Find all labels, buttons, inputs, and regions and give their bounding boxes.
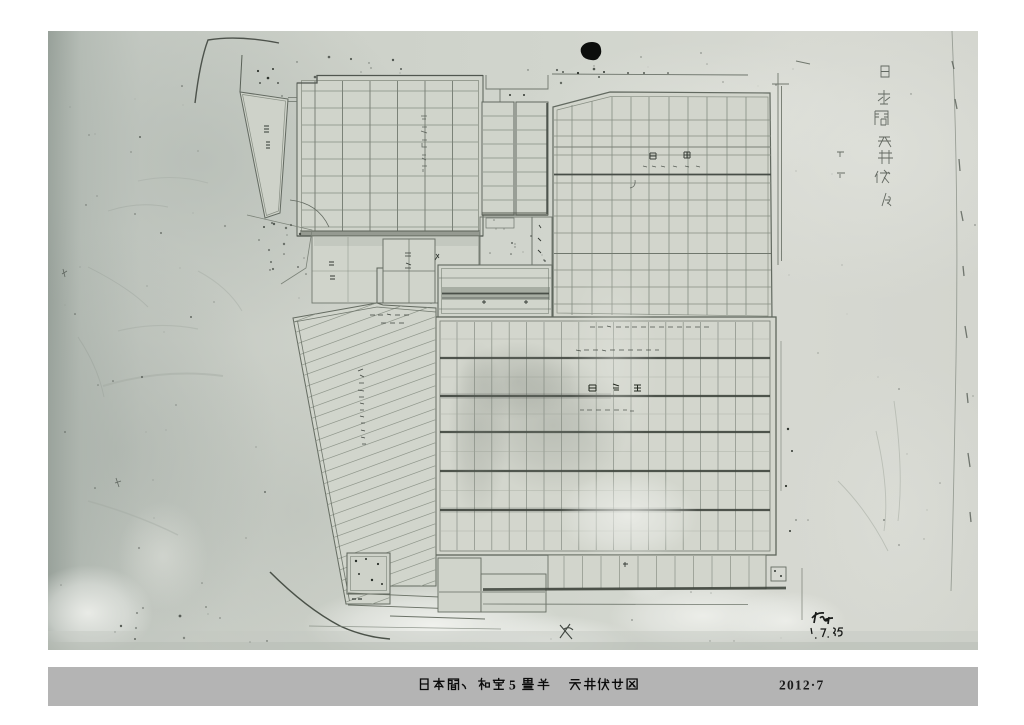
svg-text:5: 5	[509, 678, 516, 693]
svg-text:2012·7: 2012·7	[779, 678, 824, 693]
